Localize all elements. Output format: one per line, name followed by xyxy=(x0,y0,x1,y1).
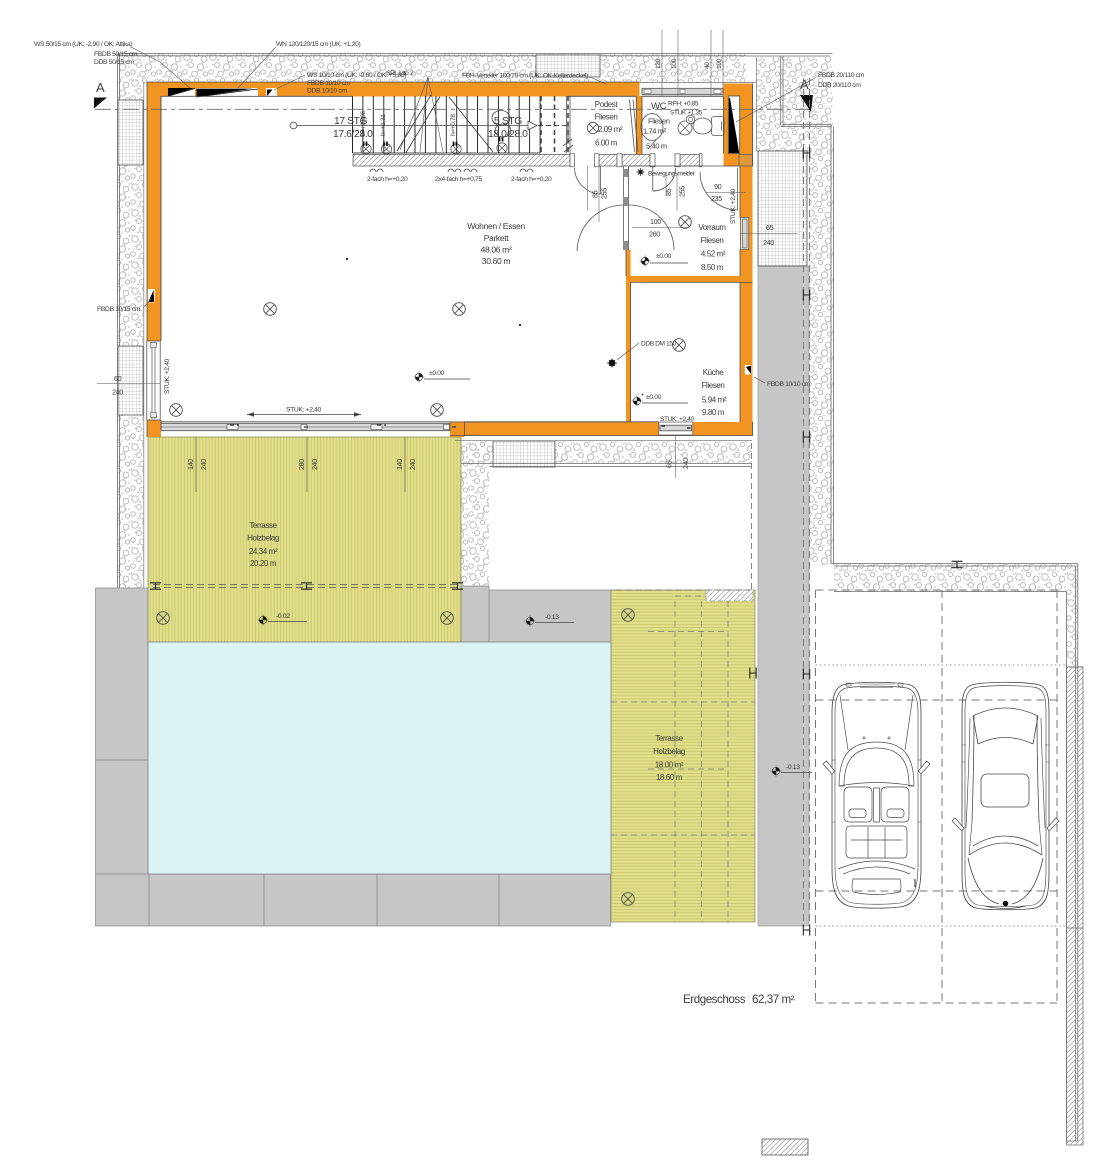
svg-text:FBDB 10/10 cm: FBDB 10/10 cm xyxy=(307,80,351,87)
svg-text:2x4-fach h=+0,75: 2x4-fach h=+0,75 xyxy=(435,176,482,183)
svg-text:±0.00: ±0.00 xyxy=(646,394,662,401)
svg-text:RPH: +0,85: RPH: +0,85 xyxy=(668,101,699,108)
svg-text:6.00 m: 6.00 m xyxy=(595,139,618,148)
svg-text:4.52 m²: 4.52 m² xyxy=(701,250,726,259)
svg-text:h=+0,78: h=+0,78 xyxy=(450,114,457,136)
svg-text:40: 40 xyxy=(704,62,711,69)
svg-text:DDB DM 150: DDB DM 150 xyxy=(641,341,677,348)
svg-text:60: 60 xyxy=(114,374,122,383)
svg-text:90: 90 xyxy=(714,182,722,191)
svg-text:18.0/28.0: 18.0/28.0 xyxy=(488,129,528,140)
svg-text:Podest: Podest xyxy=(595,100,619,109)
svg-text:100: 100 xyxy=(650,217,661,226)
svg-text:240: 240 xyxy=(112,388,123,397)
svg-text:A: A xyxy=(96,80,105,95)
svg-text:±0.00: ±0.00 xyxy=(429,370,445,377)
svg-text:24.34 m²: 24.34 m² xyxy=(249,547,278,556)
svg-text:100: 100 xyxy=(716,58,723,69)
svg-text:255: 255 xyxy=(678,186,687,197)
svg-text:STUK +1,35: STUK +1,35 xyxy=(670,110,703,117)
svg-text:240: 240 xyxy=(408,459,417,470)
svg-text:DDB 10/10 cm: DDB 10/10 cm xyxy=(307,88,347,95)
svg-text:2-fach h=+0,20: 2-fach h=+0,20 xyxy=(367,176,408,183)
svg-text:Fliesen: Fliesen xyxy=(701,236,724,245)
svg-text:140: 140 xyxy=(395,459,404,470)
svg-text:±0.00: ±0.00 xyxy=(656,253,672,260)
svg-text:9.80 m: 9.80 m xyxy=(702,408,725,417)
svg-text:Holzbelag: Holzbelag xyxy=(653,747,685,756)
svg-text:48.06 m²: 48.06 m² xyxy=(481,245,512,255)
svg-text:20.20 m: 20.20 m xyxy=(250,559,277,568)
svg-text:120: 120 xyxy=(655,58,662,69)
svg-text:5.94 m²: 5.94 m² xyxy=(702,396,727,405)
svg-text:5,40 m: 5,40 m xyxy=(646,142,667,151)
svg-text:240: 240 xyxy=(199,459,208,470)
svg-text:30.60 m: 30.60 m xyxy=(482,256,511,266)
svg-text:-0.13: -0.13 xyxy=(786,764,800,771)
svg-text:65: 65 xyxy=(766,223,774,232)
svg-text:WS 50/15 cm (UK: -2,90 / OK: A: WS 50/15 cm (UK: -2,90 / OK: Attika) xyxy=(34,41,132,48)
svg-text:280: 280 xyxy=(297,459,306,470)
svg-text:Erdgeschoss: Erdgeschoss xyxy=(683,993,746,1006)
svg-text:STUK: +2,40: STUK: +2,40 xyxy=(164,358,171,394)
svg-text:FBDB 10/10 cm: FBDB 10/10 cm xyxy=(767,381,811,388)
svg-text:18.00 m²: 18.00 m² xyxy=(655,761,684,770)
svg-text:A: A xyxy=(800,77,809,92)
svg-text:140: 140 xyxy=(186,459,195,470)
svg-text:85: 85 xyxy=(664,188,673,196)
svg-text:17 STG: 17 STG xyxy=(334,116,368,127)
svg-text:Vorraum: Vorraum xyxy=(698,223,726,232)
svg-text:260: 260 xyxy=(649,230,660,239)
svg-text:Terrasse: Terrasse xyxy=(249,521,277,530)
svg-text:WN 120/120/15 cm (UK: +1,20): WN 120/120/15 cm (UK: +1,20) xyxy=(276,41,360,48)
svg-text:2.09 m²: 2.09 m² xyxy=(598,125,623,134)
svg-text:Holzbelag: Holzbelag xyxy=(247,534,279,543)
svg-text:FBH-Verteiler 100/70 cm (UK: O: FBH-Verteiler 100/70 cm (UK: OK-Kellerde… xyxy=(462,73,588,80)
svg-text:240: 240 xyxy=(763,238,774,247)
svg-text:Fliesen: Fliesen xyxy=(595,113,618,122)
svg-text:100: 100 xyxy=(671,58,678,69)
svg-text:STUK: +2,40: STUK: +2,40 xyxy=(730,188,737,224)
svg-text:255: 255 xyxy=(600,188,609,199)
svg-text:Fliesen: Fliesen xyxy=(702,381,725,390)
svg-text:Küche: Küche xyxy=(703,368,725,377)
svg-text:SPL Lito 2: SPL Lito 2 xyxy=(386,70,414,77)
svg-text:-0.02: -0.02 xyxy=(276,613,290,620)
svg-text:h=+1,31: h=+1,31 xyxy=(380,114,387,136)
svg-text:65: 65 xyxy=(665,460,674,468)
svg-text:85: 85 xyxy=(591,190,600,198)
svg-text:Wohnen / Essen: Wohnen / Essen xyxy=(467,221,525,231)
svg-text:18.60 m: 18.60 m xyxy=(656,773,683,782)
svg-text:Bewegungsmelder: Bewegungsmelder xyxy=(648,171,695,178)
svg-text:-0.13: -0.13 xyxy=(545,614,559,621)
svg-text:Parkett: Parkett xyxy=(484,233,510,243)
svg-text:17.6/28.0: 17.6/28.0 xyxy=(333,129,373,140)
svg-text:62,37 m²: 62,37 m² xyxy=(752,993,795,1006)
svg-text:STUK: +2,40: STUK: +2,40 xyxy=(660,416,694,423)
svg-text:FBDB 20/110 cm: FBDB 20/110 cm xyxy=(818,72,865,79)
svg-text:DDB 20/110 cm: DDB 20/110 cm xyxy=(818,82,861,89)
svg-text:FBDB 10/15 cm: FBDB 10/15 cm xyxy=(97,306,141,313)
svg-text:WC: WC xyxy=(651,101,667,112)
svg-text:Terrasse: Terrasse xyxy=(655,734,683,743)
svg-text:STUK: +2,40: STUK: +2,40 xyxy=(286,407,322,414)
svg-text:240: 240 xyxy=(310,459,319,470)
svg-text:235: 235 xyxy=(711,194,722,203)
svg-text:Fliesen: Fliesen xyxy=(648,117,670,126)
svg-text:DDB 50/15 cm: DDB 50/15 cm xyxy=(94,59,134,66)
svg-text:8.50 m: 8.50 m xyxy=(701,263,724,272)
svg-text:2-fach h=+0,20: 2-fach h=+0,20 xyxy=(511,176,552,183)
svg-text:FBDB 50/15 cm: FBDB 50/15 cm xyxy=(94,51,138,58)
